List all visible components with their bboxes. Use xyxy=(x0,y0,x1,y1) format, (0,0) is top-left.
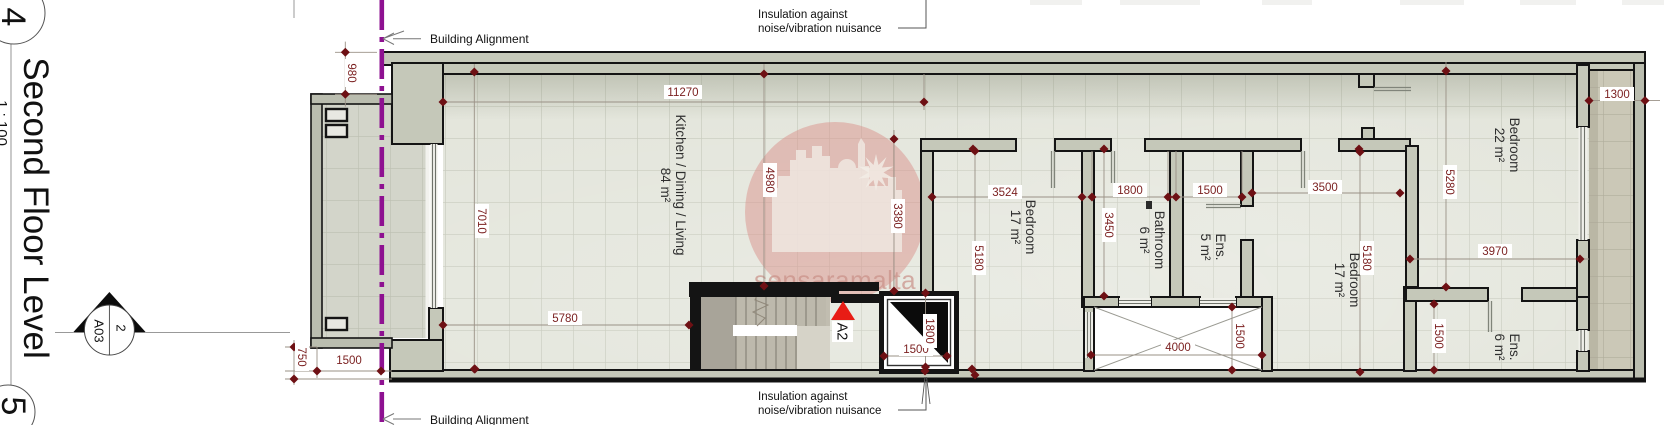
svg-text:6 m²: 6 m² xyxy=(1492,334,1507,362)
svg-text:3500: 3500 xyxy=(1312,182,1338,194)
svg-text:1500: 1500 xyxy=(1233,323,1245,349)
svg-text:Bathroom: Bathroom xyxy=(1152,211,1167,270)
svg-text:980: 980 xyxy=(345,63,357,82)
svg-text:3450: 3450 xyxy=(1102,212,1114,238)
svg-text:4980: 4980 xyxy=(763,167,775,193)
svg-text:1500: 1500 xyxy=(336,355,362,367)
svg-text:Insulation against: Insulation against xyxy=(758,9,848,21)
svg-text:3524: 3524 xyxy=(992,187,1018,199)
svg-text:84 m²: 84 m² xyxy=(658,168,673,203)
svg-text:Building Alignment: Building Alignment xyxy=(430,32,529,46)
svg-text:Ens.: Ens. xyxy=(1213,233,1228,260)
svg-text:Bedroom: Bedroom xyxy=(1507,118,1522,173)
svg-text:5780: 5780 xyxy=(552,313,578,325)
svg-text:6 m²: 6 m² xyxy=(1137,227,1152,255)
svg-text:2: 2 xyxy=(114,324,129,331)
svg-text:Building Alignment: Building Alignment xyxy=(430,413,529,425)
svg-text:1 : 100: 1 : 100 xyxy=(0,100,10,146)
svg-text:3970: 3970 xyxy=(1482,246,1508,258)
svg-text:11270: 11270 xyxy=(667,87,698,99)
svg-text:5180: 5180 xyxy=(972,245,984,271)
svg-text:Ens.: Ens. xyxy=(1507,333,1522,360)
svg-text:4000: 4000 xyxy=(1165,342,1191,354)
svg-text:7010: 7010 xyxy=(475,208,487,234)
svg-text:Bedroom: Bedroom xyxy=(1023,200,1038,255)
svg-text:1500: 1500 xyxy=(1197,185,1223,197)
svg-text:5 m²: 5 m² xyxy=(1198,234,1213,262)
svg-text:Bedroom: Bedroom xyxy=(1347,253,1362,308)
svg-text:1300: 1300 xyxy=(1604,89,1630,101)
svg-text:A2: A2 xyxy=(834,323,850,341)
svg-text:noise/vibration nuisance: noise/vibration nuisance xyxy=(758,23,881,35)
svg-text:Second Floor Level: Second Floor Level xyxy=(16,57,55,359)
svg-text:5280: 5280 xyxy=(1443,169,1455,195)
svg-text:3380: 3380 xyxy=(891,203,903,229)
svg-text:Insulation against: Insulation against xyxy=(758,391,848,403)
svg-text:22 m²: 22 m² xyxy=(1492,128,1507,163)
svg-text:17 m²: 17 m² xyxy=(1008,210,1023,245)
svg-text:1500: 1500 xyxy=(1432,323,1444,349)
svg-text:noise/vibration nuisance: noise/vibration nuisance xyxy=(758,405,881,417)
svg-text:5: 5 xyxy=(0,397,32,416)
svg-text:4: 4 xyxy=(0,8,32,27)
svg-text:A03: A03 xyxy=(92,319,107,342)
svg-text:1800: 1800 xyxy=(1117,185,1143,197)
svg-text:1800: 1800 xyxy=(923,318,935,344)
svg-text:750: 750 xyxy=(295,347,307,366)
svg-text:Kitchen / Dining / Living: Kitchen / Dining / Living xyxy=(673,114,688,255)
svg-text:17 m²: 17 m² xyxy=(1332,263,1347,298)
